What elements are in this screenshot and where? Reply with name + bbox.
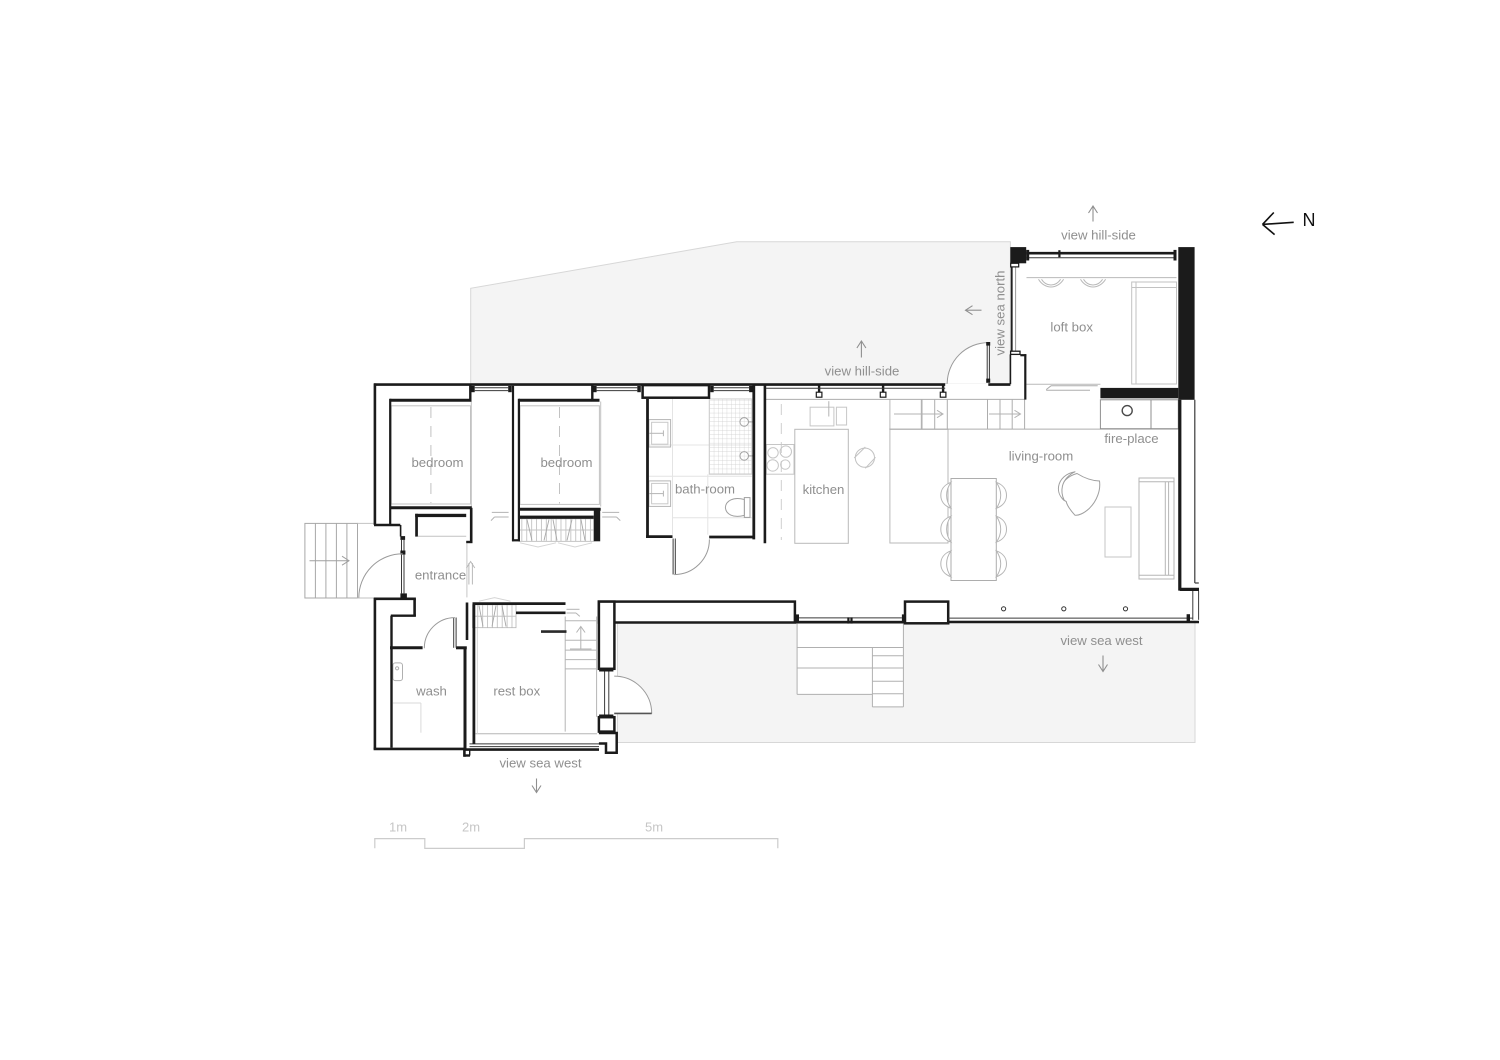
svg-text:kitchen: kitchen	[803, 482, 845, 497]
svg-text:1m: 1m	[389, 820, 407, 835]
svg-text:wash: wash	[415, 684, 447, 699]
svg-text:fire-place: fire-place	[1104, 431, 1158, 446]
svg-text:living-room: living-room	[1009, 449, 1074, 464]
svg-text:view sea north: view sea north	[993, 270, 1008, 355]
svg-text:view sea west: view sea west	[1060, 633, 1142, 648]
svg-text:bedroom: bedroom	[411, 455, 463, 470]
svg-text:2m: 2m	[462, 820, 480, 835]
svg-text:5m: 5m	[645, 820, 663, 835]
svg-text:bedroom: bedroom	[540, 455, 592, 470]
svg-text:entrance: entrance	[415, 568, 466, 583]
svg-text:bath-room: bath-room	[675, 482, 735, 497]
svg-text:view hill-side: view hill-side	[1061, 228, 1136, 243]
svg-text:rest box: rest box	[493, 684, 540, 699]
svg-text:view sea west: view sea west	[499, 756, 581, 771]
svg-text:N: N	[1303, 210, 1316, 230]
svg-text:loft box: loft box	[1050, 320, 1093, 335]
svg-text:view hill-side: view hill-side	[825, 364, 900, 379]
